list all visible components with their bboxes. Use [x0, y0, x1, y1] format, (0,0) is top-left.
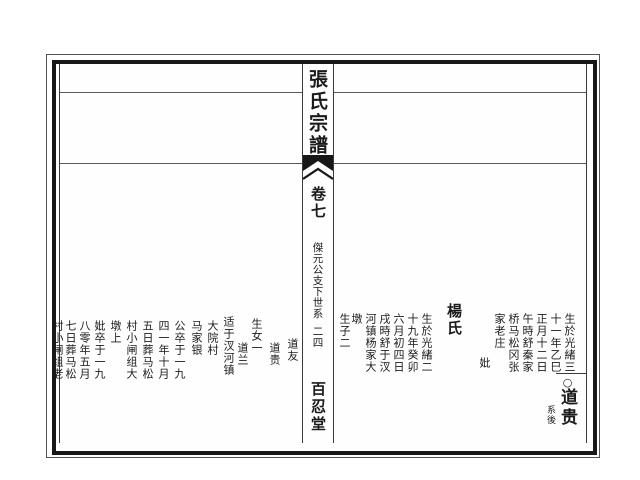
genealogy-book-spread: 張氏宗譜 卷七 傑元公支下世系 二四 百忍堂 生於光緒三 十一年乙巳 正月十二日… — [0, 0, 640, 480]
row-rule — [334, 92, 586, 93]
birth-record-column: 生於光緒三 — [564, 313, 575, 373]
mother-label: 妣 — [479, 357, 490, 369]
row-rule — [334, 163, 586, 164]
record-column: 墩上 — [110, 320, 121, 344]
left-page-edge-rule — [59, 64, 60, 443]
mother-birth-column: 十九年癸卯 — [407, 313, 418, 373]
mother-birth-column: 河镇杨家大 — [365, 313, 376, 373]
spine-left-rule — [302, 64, 303, 443]
heir-name: 道贵 — [558, 388, 575, 428]
record-column: 村小闸组大 — [126, 320, 137, 380]
record-column: 公卒于一九 — [174, 320, 185, 380]
fishtail-icon — [303, 155, 333, 182]
mother-birth-column: 六月初四日 — [393, 313, 404, 373]
spine-title: 張氏宗譜 — [307, 69, 326, 157]
daughter-note-column: 生女一 — [251, 318, 262, 354]
birth-record-column: 桥马松冈张 — [508, 313, 519, 373]
record-column: 八零年五月 — [79, 320, 90, 380]
spine-hall-name: 百忍堂 — [310, 381, 325, 434]
birth-record-column: 十一年乙巳 — [550, 313, 561, 373]
birth-record-column: 正月十二日 — [536, 313, 547, 373]
record-column: 大院村 — [207, 320, 218, 356]
row-rule — [60, 163, 302, 164]
record-column: 四一年十月 — [158, 320, 169, 380]
mother-birth-column: 戌時舒于汊 — [379, 313, 390, 373]
record-column: 五日葬马松 — [142, 320, 153, 380]
row-rule — [60, 92, 302, 93]
mother-birth-column: 墩 — [351, 313, 362, 325]
spine-right-rule — [333, 64, 334, 443]
spine-page-number: 二四 — [312, 326, 323, 348]
mother-birth-column: 生於光緒二 — [421, 313, 432, 373]
son-name-column: 道贵 — [269, 342, 280, 366]
daughter-name-column: 道兰 — [237, 342, 248, 366]
record-column: 马家银 — [191, 320, 202, 356]
heir-cell-rule — [556, 373, 586, 374]
sons-note: 生子二 — [339, 313, 350, 349]
record-column: 妣卒于一九 — [94, 320, 105, 380]
mother-name: 楊氏 — [446, 303, 461, 337]
spine-section-label: 傑元公支下世系 — [312, 242, 323, 319]
son-name-column: 道友 — [287, 338, 298, 362]
birth-record-column: 家老庄 — [494, 313, 505, 349]
birth-record-column: 午時舒秦家 — [522, 313, 533, 373]
record-column: 适于汊河镇 — [223, 316, 234, 376]
right-page-edge-rule — [586, 64, 587, 443]
heir-note: 系後 — [545, 405, 554, 425]
spine-volume-label: 卷七 — [310, 186, 325, 220]
record-column: 七日葬马松 — [65, 320, 76, 380]
record-column: 村小闸组老 — [52, 320, 63, 380]
